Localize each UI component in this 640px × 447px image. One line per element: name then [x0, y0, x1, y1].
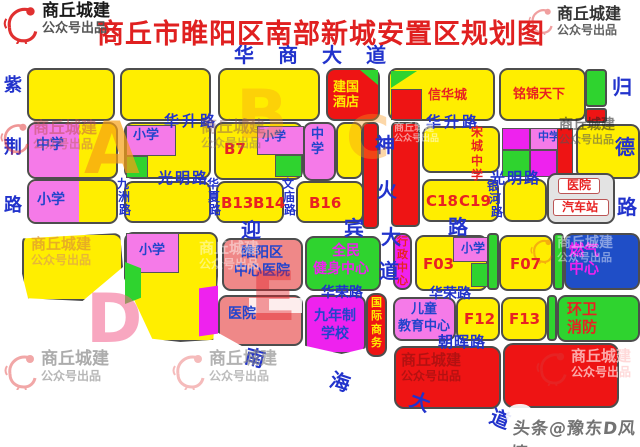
label-f03: F03: [423, 256, 454, 273]
planning-map: 建国 酒店 信华城 铭锦天下 中学 小学 B7 小学 中 学 中学 小学 B13…: [0, 0, 640, 447]
rooster-logo-icon: [172, 350, 206, 390]
rooster-logo-icon: [3, 2, 39, 44]
road-zijing-3: 路: [4, 196, 22, 216]
label-b16: B16: [309, 195, 341, 212]
label-xiaoxue: 小学: [139, 244, 165, 259]
zone-letter-d: D: [86, 286, 142, 354]
rooster-logo-icon: [536, 348, 568, 386]
watermark-right-mid: 商丘城建 公众号出品: [556, 118, 615, 147]
label-jiunian2: 学校: [321, 326, 349, 342]
watermark-left-mid: 商丘城建 公众号出品: [0, 119, 97, 155]
label-xiaoxue: 小学: [37, 192, 65, 208]
rooster-logo-icon: [0, 119, 30, 155]
road-huarong-west: 华荣路: [321, 286, 363, 301]
watermark-hospital: 商丘城建 公众号出品: [196, 240, 259, 271]
road-guide-2: 德: [615, 136, 635, 158]
watermark-bottom-left: 商丘城建 公众号出品: [4, 350, 109, 390]
green-corner: [360, 70, 378, 85]
road-shenhuo-2: 火: [377, 179, 397, 201]
label-jiunian: 九年制: [314, 308, 356, 324]
road-shenhuo-3: 大: [381, 226, 401, 248]
parcel-green: [585, 69, 607, 107]
green-corner: [391, 71, 417, 88]
zone-letter-c: C: [346, 108, 390, 168]
label-b14: B14: [253, 195, 285, 212]
label-yiyuan: 医院: [567, 179, 591, 193]
road-wenmiao-3: 路: [284, 204, 296, 217]
watermark-pentagon: 商丘城建 公众号出品: [28, 236, 91, 267]
rooster-logo-icon: [530, 236, 554, 264]
label-qichezhan: 汽车站: [562, 201, 598, 215]
watermark-center-mid: 商丘城建 公众号出品: [198, 118, 265, 150]
road-huaxia-3: 路: [209, 204, 221, 217]
watermark-red-block-1: 商丘城建 公众号出品: [398, 352, 461, 383]
label-b13: B13: [221, 195, 253, 212]
rooster-logo-icon: [4, 350, 38, 390]
road-yingbin-ying: 迎: [241, 219, 261, 241]
label-zhongxue-vertical: 中 学: [311, 128, 324, 158]
mag-subparcel: [502, 128, 530, 150]
road-zijing-1: 紫: [4, 76, 22, 96]
rooster-logo-icon: [528, 5, 554, 35]
credit-text: 头条@豫东D风情: [509, 414, 640, 447]
watermark-red-block-2: 商丘城建 公众号出品: [536, 348, 631, 386]
label-f13: F13: [509, 311, 540, 328]
label-mingjin: 铭锦天下: [513, 88, 565, 103]
road-nanhai-2: 海: [327, 368, 353, 395]
label-f12: F12: [464, 311, 495, 328]
label-huanwei: 环卫: [567, 301, 597, 318]
label-songcheng-school: 宋 城 中 学: [471, 125, 483, 183]
watermark-on-red-strip: 商丘城建 公众号出品: [391, 123, 439, 145]
watermark-top-left: 商丘城建 公众号出品: [3, 2, 110, 44]
road-lu-east: 路: [448, 216, 468, 238]
label-xinhuacheng: 信华城: [428, 89, 467, 104]
block-nine-year-school: [305, 295, 366, 354]
red-subparcel: [391, 89, 422, 120]
road-guide-3: 路: [617, 196, 637, 218]
label-c18: C18: [426, 193, 458, 210]
label-quanmin: 全民: [332, 243, 360, 259]
map-title: 商丘市睢阳区南部新城安置区规划图: [70, 12, 572, 51]
road-yingbin-bin: 宾: [344, 217, 364, 239]
mag-wedge: [199, 286, 218, 337]
green-subparcel: [275, 155, 302, 177]
label-ertong: 儿童: [411, 303, 437, 318]
road-zhaohui: 朝晖路: [438, 334, 486, 351]
watermark-top-right: 商丘城建 公众号出品: [528, 5, 621, 37]
label-xiaoxue: 小学: [461, 242, 485, 256]
green-strip: [487, 233, 499, 290]
road-huarong-east: 华荣路: [429, 287, 471, 302]
watermark-bottom-center: 商丘城建 公众号出品: [172, 350, 277, 390]
road-yinhe-3: 路: [491, 206, 503, 219]
label-guoji: 国 际 商 务: [371, 296, 382, 350]
road-guide-1: 归: [612, 76, 632, 98]
green-strip: [547, 295, 557, 341]
watermark-gas-block: 商丘城建 公众号出品: [530, 236, 613, 265]
road-jiuzhou-3: 路: [119, 204, 131, 217]
label-c19: C19: [459, 193, 491, 210]
label-huanwei2: 消防: [567, 319, 597, 336]
zone-letter-e: E: [250, 264, 296, 332]
road-shenhuo-4: 道: [379, 260, 399, 282]
road-guangming-west: 光明路: [158, 170, 209, 187]
label-quanmin2: 健身中心: [313, 261, 369, 277]
